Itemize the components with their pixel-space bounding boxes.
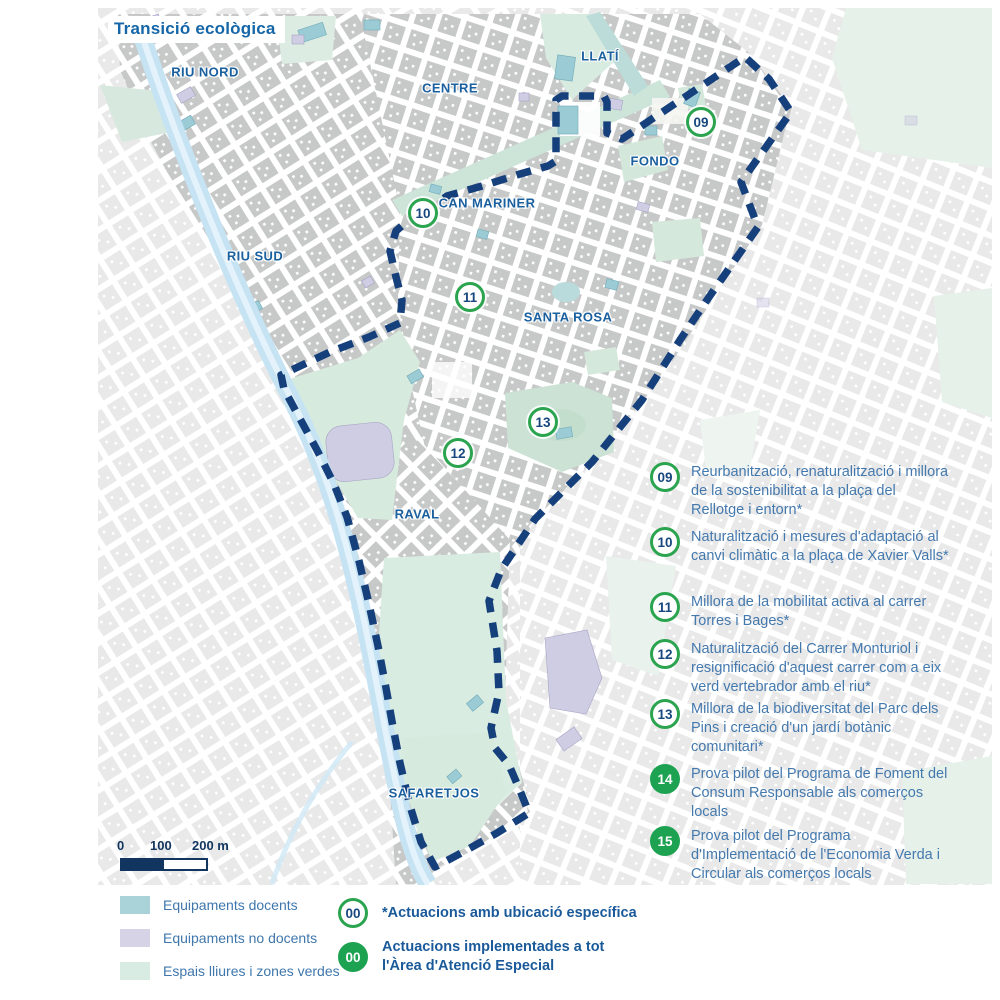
action-text-15: Prova pilot del Programa d'Implementació… bbox=[691, 826, 949, 884]
scale-bar: 0 100 200 m bbox=[110, 838, 240, 874]
legend-notes: 00 *Actuacions amb ubicació específica 0… bbox=[338, 898, 642, 986]
action-text-14: Prova pilot del Programa de Foment del C… bbox=[691, 764, 949, 822]
action-item-10: 10 Naturalització i mesures d'adaptació … bbox=[650, 527, 949, 566]
scale-bar-rule bbox=[120, 858, 208, 871]
action-badge-15: 15 bbox=[650, 826, 680, 856]
action-text-12: Naturalització del Carrer Monturiol i re… bbox=[691, 639, 949, 697]
map-marker-09: 09 bbox=[686, 107, 716, 137]
district-label-santa-rosa: SANTA ROSA bbox=[524, 310, 613, 325]
legend-label-verdes: Espais lliures i zones verdes bbox=[163, 963, 340, 979]
page: Transició ecològica RIU NORD CENTRE LLAT… bbox=[0, 0, 1000, 1000]
district-label-llati: LLATÍ bbox=[581, 49, 619, 64]
action-item-11: 11 Millora de la mobilitat activa al car… bbox=[650, 592, 949, 631]
district-label-fondo: FONDO bbox=[631, 154, 680, 169]
swatch-verdes bbox=[120, 962, 150, 980]
map-marker-11: 11 bbox=[455, 282, 485, 312]
district-label-safaretjos: SAFARETJOS bbox=[389, 786, 480, 801]
action-item-09: 09 Reurbanització, renaturalització i mi… bbox=[650, 462, 949, 520]
legend-label-docents: Equipaments docents bbox=[163, 897, 298, 913]
legend-item-verdes: Espais lliures i zones verdes bbox=[120, 962, 340, 980]
action-text-13: Millora de la biodiversitat del Parc del… bbox=[691, 699, 949, 757]
district-label-centre: CENTRE bbox=[422, 81, 478, 96]
legend-item-docents: Equipaments docents bbox=[120, 896, 340, 914]
action-text-10: Naturalització i mesures d'adaptació al … bbox=[691, 527, 949, 566]
legend-note-label-specific: *Actuacions amb ubicació específica bbox=[382, 904, 637, 923]
district-label-riu-sud: RIU SUD bbox=[227, 249, 283, 264]
scale-label-100: 100 bbox=[150, 838, 172, 853]
swatch-docents bbox=[120, 896, 150, 914]
legend-areas: Equipaments docents Equipaments no docen… bbox=[120, 896, 340, 995]
district-label-riu-nord: RIU NORD bbox=[171, 65, 238, 80]
scale-label-0: 0 bbox=[117, 838, 124, 853]
map-marker-10: 10 bbox=[408, 198, 438, 228]
legend-note-label-areawide: Actuacions implementades a tot l'Àrea d'… bbox=[382, 938, 642, 976]
map-marker-13: 13 bbox=[528, 407, 558, 437]
district-label-raval: RAVAL bbox=[395, 507, 440, 522]
legend-badge-filled: 00 bbox=[338, 942, 368, 972]
action-badge-12: 12 bbox=[650, 639, 680, 669]
action-item-14: 14 Prova pilot del Programa de Foment de… bbox=[650, 764, 949, 822]
action-badge-10: 10 bbox=[650, 527, 680, 557]
action-text-11: Millora de la mobilitat activa al carrer… bbox=[691, 592, 949, 631]
action-item-13: 13 Millora de la biodiversitat del Parc … bbox=[650, 699, 949, 757]
action-badge-13: 13 bbox=[650, 699, 680, 729]
action-item-15: 15 Prova pilot del Programa d'Implementa… bbox=[650, 826, 949, 884]
action-item-12: 12 Naturalització del Carrer Monturiol i… bbox=[650, 639, 949, 697]
legend-note-specific: 00 *Actuacions amb ubicació específica bbox=[338, 898, 642, 928]
legend-item-no-docents: Equipaments no docents bbox=[120, 929, 340, 947]
legend-label-no-docents: Equipaments no docents bbox=[163, 930, 317, 946]
action-badge-09: 09 bbox=[650, 462, 680, 492]
action-badge-14: 14 bbox=[650, 764, 680, 794]
page-title: Transició ecològica bbox=[108, 16, 285, 43]
district-label-can-mariner: CAN MARINER bbox=[439, 196, 536, 211]
scale-label-200: 200 m bbox=[192, 838, 229, 853]
swatch-no-docents bbox=[120, 929, 150, 947]
legend-badge-outline: 00 bbox=[338, 898, 368, 928]
map-marker-12: 12 bbox=[443, 438, 473, 468]
action-badge-11: 11 bbox=[650, 592, 680, 622]
legend-note-areawide: 00 Actuacions implementades a tot l'Àrea… bbox=[338, 938, 642, 976]
action-text-09: Reurbanització, renaturalització i millo… bbox=[691, 462, 949, 520]
